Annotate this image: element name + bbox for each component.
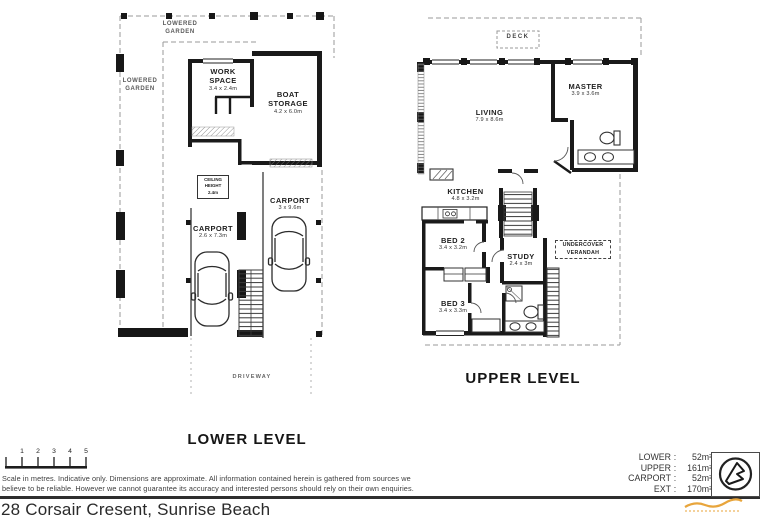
- footer-divider: [0, 496, 760, 499]
- kitchen-bench-icon: [422, 207, 487, 220]
- disclaimer-line1: Scale in metres. Indicative only. Dimens…: [2, 474, 411, 483]
- lower-staircase: [239, 270, 263, 336]
- room-label-living: LIVING 7.9 x 8.6m: [462, 108, 517, 124]
- scale-tick-label: 3: [49, 448, 59, 455]
- disclaimer-line2: believe to be reliable. However we canno…: [2, 484, 414, 493]
- upper-level-title: UPPER LEVEL: [434, 370, 612, 387]
- scale-tick-label: 1: [17, 448, 27, 455]
- toilet-icon: [600, 131, 620, 145]
- lowered-garden-left-label: LOWERED GARDEN: [119, 77, 161, 93]
- wir-angled-wall: [554, 161, 571, 173]
- window: [203, 58, 233, 64]
- car-icon: [269, 217, 310, 291]
- orange-highlight-squiggle: [682, 498, 748, 516]
- kitchen-pantry-icon: [430, 169, 453, 180]
- floor-areas-table: LOWER : 52m² UPPER : 161m² CARPORT : 52m…: [596, 452, 712, 494]
- garage-door-hatch: [270, 159, 312, 167]
- area-row: LOWER : 52m²: [596, 452, 712, 463]
- room-label-bed3: BED 3 3.4 x 3.3m: [430, 299, 476, 315]
- area-row: UPPER : 161m²: [596, 463, 712, 474]
- upper-level-linework: [417, 18, 641, 345]
- room-label-study: STUDY 2.4 x 3m: [498, 252, 544, 268]
- driveway-label: DRIVEWAY: [212, 374, 292, 380]
- room-label-master: MASTER 3.9 x 3.6m: [558, 82, 613, 98]
- toilet-icon: [524, 305, 544, 319]
- room-label-carport-left: CARPORT 2.6 x 7.3m: [188, 224, 238, 240]
- lower-level-title: LOWER LEVEL: [158, 431, 336, 448]
- lowered-garden-top-label: LOWERED GARDEN: [159, 20, 201, 36]
- ceiling-height-note: CEILING HEIGHT 2.4m: [197, 175, 229, 199]
- property-address: 28 Corsair Cresent, Sunrise Beach: [1, 500, 270, 520]
- scale-tick-label: 5: [81, 448, 91, 455]
- scale-tick-label: 4: [65, 448, 75, 455]
- agency-logo: [711, 452, 760, 497]
- deck-label: DECK: [498, 34, 538, 40]
- scale-bar: [5, 457, 87, 469]
- ensuite-vanity-icon: [578, 150, 634, 164]
- deck-railing: [418, 64, 424, 174]
- upper-boundary-dashed: [425, 18, 641, 345]
- deck-edge-hatch: [192, 127, 234, 136]
- floorplan-linework: [0, 0, 760, 522]
- workspace-partition: [215, 97, 253, 114]
- stairwell-hatch: [504, 192, 532, 236]
- room-label-work-space: WORK SPACE 3.4 x 2.4m: [202, 67, 244, 93]
- car-icon: [192, 252, 233, 326]
- area-row: EXT : 170m²: [596, 484, 712, 495]
- floorplan-page: LOWERED GARDEN LOWERED GARDEN WORK SPACE…: [0, 0, 760, 522]
- area-row: CARPORT : 52m²: [596, 473, 712, 484]
- room-label-boat-storage: BOAT STORAGE 4.2 x 6.0m: [262, 90, 314, 116]
- verandah-label: UNDERCOVER VERANDAH: [555, 240, 611, 259]
- driveway-dashed: [191, 338, 311, 396]
- scale-tick-label: 2: [33, 448, 43, 455]
- upper-staircase: [547, 268, 559, 337]
- room-label-carport-right: CARPORT 3 x 9.6m: [264, 196, 316, 212]
- room-label-kitchen: KITCHEN 4.8 x 3.2m: [438, 187, 493, 203]
- room-label-bed2: BED 2 3.4 x 3.2m: [430, 236, 476, 252]
- compass-logo-icon: [712, 453, 759, 496]
- bathroom-vanity-icon: [505, 321, 544, 332]
